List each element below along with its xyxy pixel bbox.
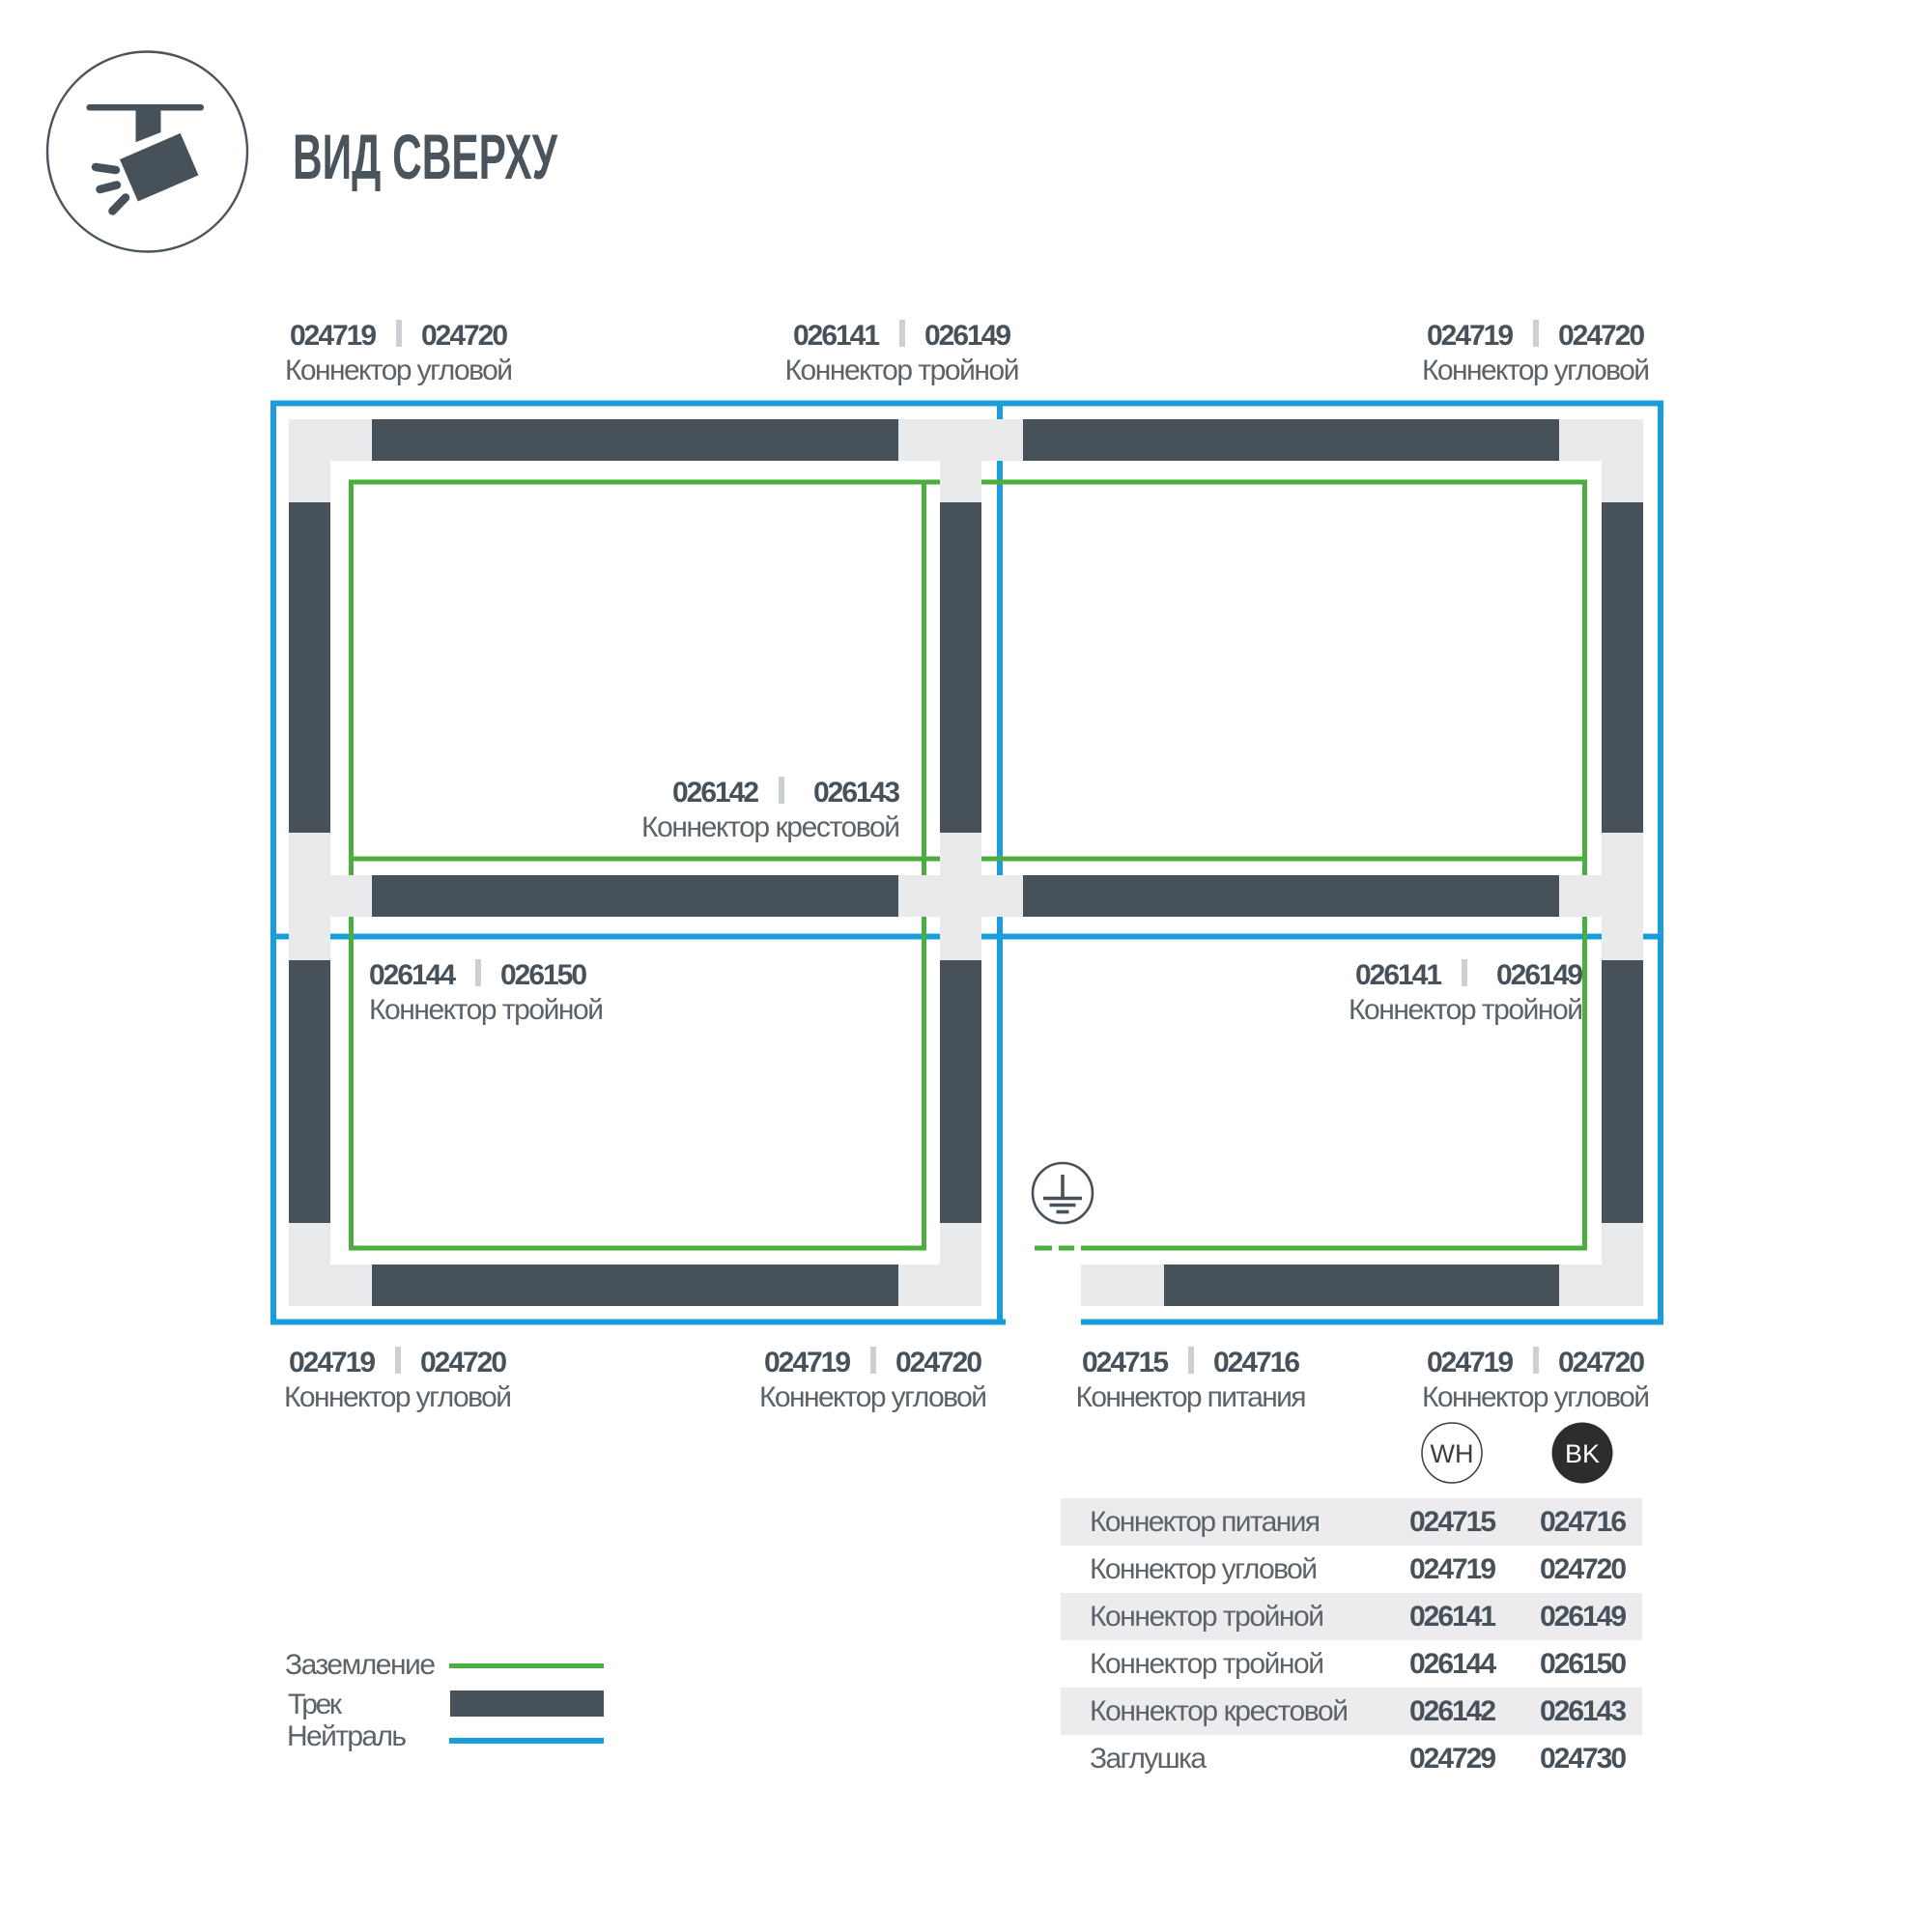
svg-text:Нейтраль: Нейтраль — [287, 1720, 407, 1752]
svg-text:024719: 024719 — [1427, 1347, 1514, 1378]
svg-text:Коннектор тройной: Коннектор тройной — [1090, 1648, 1324, 1680]
svg-text:Коннектор угловой: Коннектор угловой — [1422, 355, 1650, 386]
svg-text:026150: 026150 — [1540, 1648, 1627, 1680]
svg-text:024720: 024720 — [1558, 1347, 1645, 1378]
svg-text:Коннектор питания: Коннектор питания — [1090, 1506, 1321, 1538]
svg-text:Коннектор крестовой: Коннектор крестовой — [1090, 1695, 1349, 1727]
svg-text:Коннектор тройной: Коннектор тройной — [785, 355, 1020, 386]
svg-text:Коннектор тройной: Коннектор тройной — [1090, 1601, 1324, 1633]
svg-text:Коннектор крестовой: Коннектор крестовой — [641, 811, 900, 843]
svg-text:BK: BK — [1565, 1439, 1600, 1468]
svg-text:Коннектор тройной: Коннектор тройной — [1349, 994, 1583, 1026]
svg-text:024729: 024729 — [1409, 1743, 1496, 1775]
svg-text:024720: 024720 — [420, 1347, 507, 1378]
svg-text:024720: 024720 — [1558, 320, 1645, 352]
svg-text:024719: 024719 — [764, 1347, 851, 1378]
svg-text:Трек: Трек — [288, 1689, 343, 1720]
svg-text:024720: 024720 — [1540, 1553, 1627, 1585]
svg-text:Коннектор угловой: Коннектор угловой — [284, 1381, 512, 1413]
svg-text:024730: 024730 — [1540, 1743, 1627, 1775]
svg-text:Коннектор угловой: Коннектор угловой — [759, 1381, 987, 1413]
svg-text:Заглушка: Заглушка — [1090, 1743, 1207, 1775]
svg-text:024719: 024719 — [1427, 320, 1514, 352]
svg-text:024716: 024716 — [1540, 1506, 1627, 1538]
svg-text:Коннектор угловой: Коннектор угловой — [285, 355, 513, 386]
svg-text:026149: 026149 — [924, 320, 1011, 352]
svg-text:026142: 026142 — [1409, 1695, 1496, 1727]
svg-text:026141: 026141 — [793, 320, 880, 352]
svg-text:024715: 024715 — [1409, 1506, 1496, 1538]
svg-text:Коннектор питания: Коннектор питания — [1076, 1381, 1307, 1413]
svg-text:Коннектор тройной: Коннектор тройной — [369, 994, 604, 1026]
svg-text:024719: 024719 — [1409, 1553, 1496, 1585]
svg-text:Коннектор угловой: Коннектор угловой — [1422, 1381, 1650, 1413]
svg-text:026141: 026141 — [1409, 1601, 1496, 1633]
svg-text:024715: 024715 — [1082, 1347, 1169, 1378]
svg-text:026143: 026143 — [1540, 1695, 1627, 1727]
svg-text:024719: 024719 — [290, 320, 377, 352]
svg-text:024720: 024720 — [421, 320, 508, 352]
svg-text:026144: 026144 — [1409, 1648, 1496, 1680]
svg-text:026149: 026149 — [1540, 1601, 1627, 1633]
svg-text:026150: 026150 — [500, 959, 587, 991]
svg-text:ВИД СВЕРХУ: ВИД СВЕРХУ — [293, 121, 558, 192]
svg-text:Заземление: Заземление — [285, 1649, 436, 1681]
svg-text:Коннектор угловой: Коннектор угловой — [1090, 1553, 1318, 1585]
svg-text:026149: 026149 — [1496, 959, 1583, 991]
svg-text:024716: 024716 — [1213, 1347, 1300, 1378]
svg-text:026144: 026144 — [369, 959, 456, 991]
svg-text:024719: 024719 — [289, 1347, 376, 1378]
svg-text:026142: 026142 — [672, 777, 759, 809]
svg-text:026143: 026143 — [813, 777, 900, 809]
svg-text:024720: 024720 — [895, 1347, 982, 1378]
svg-text:WH: WH — [1431, 1439, 1474, 1468]
svg-text:026141: 026141 — [1355, 959, 1442, 991]
